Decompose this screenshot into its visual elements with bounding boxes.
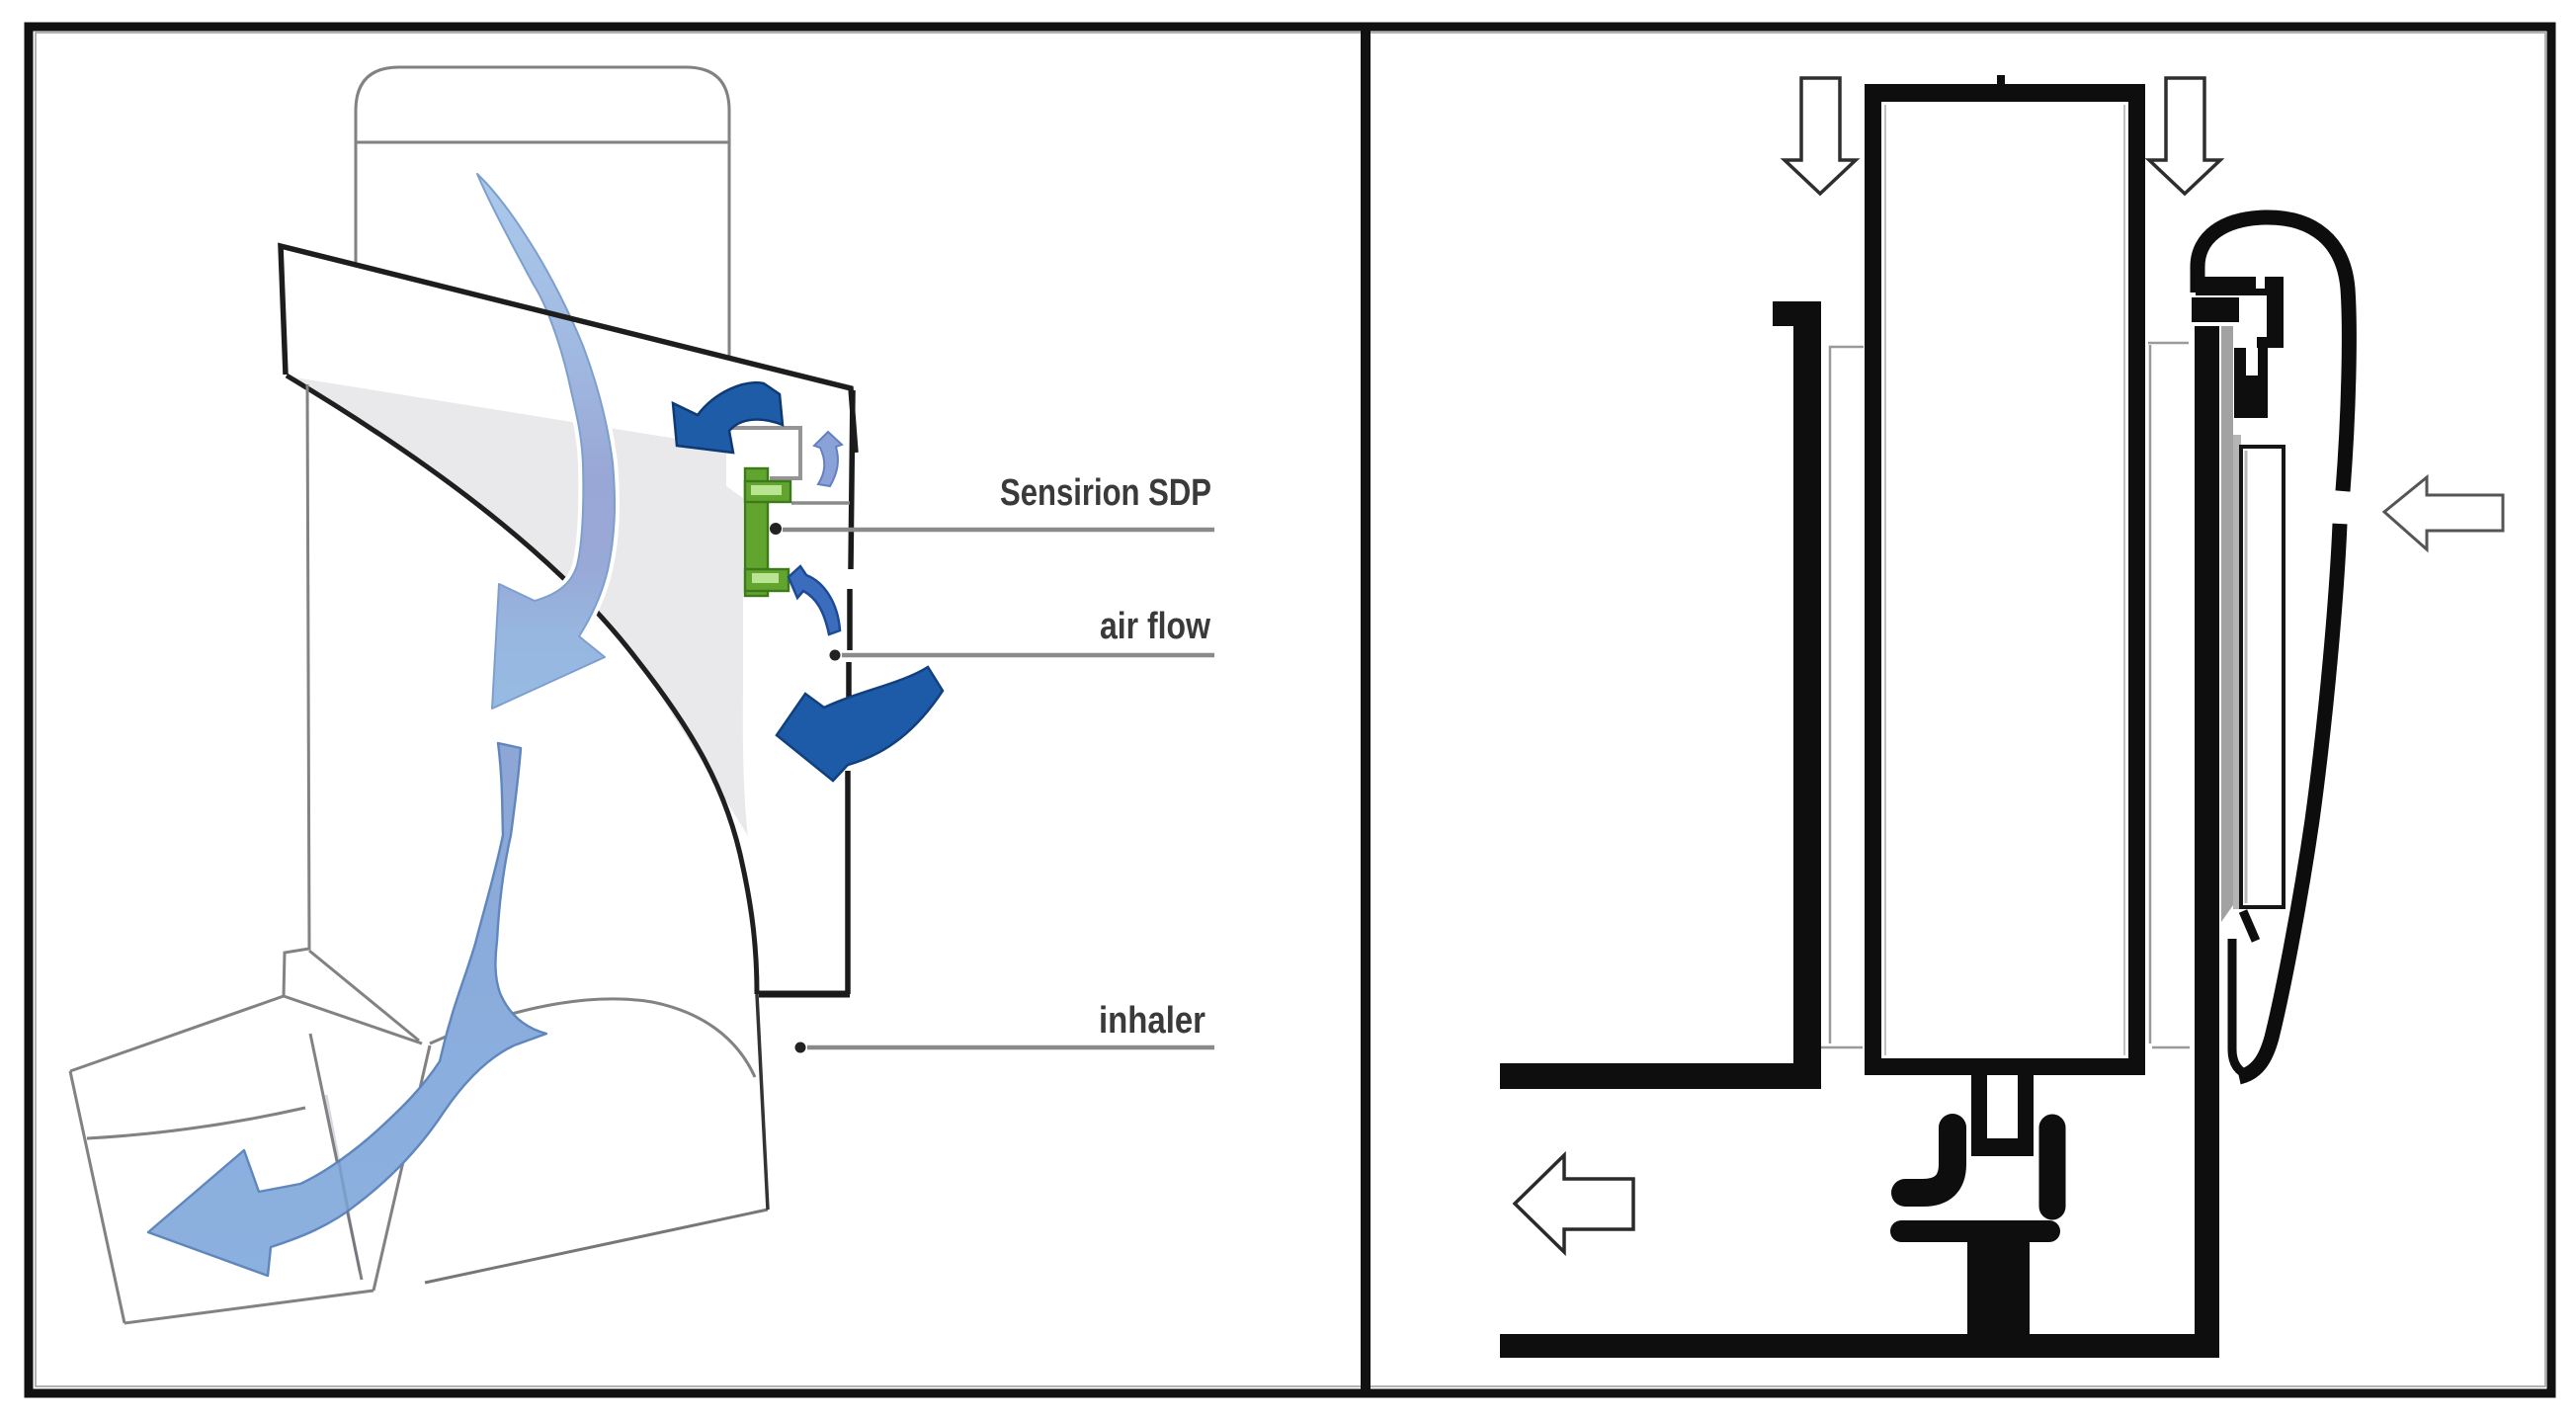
svg-text:inhaler: inhaler bbox=[1099, 1000, 1205, 1042]
svg-text:Sensirion SDP: Sensirion SDP bbox=[1000, 472, 1211, 514]
svg-text:air flow: air flow bbox=[1100, 606, 1210, 647]
